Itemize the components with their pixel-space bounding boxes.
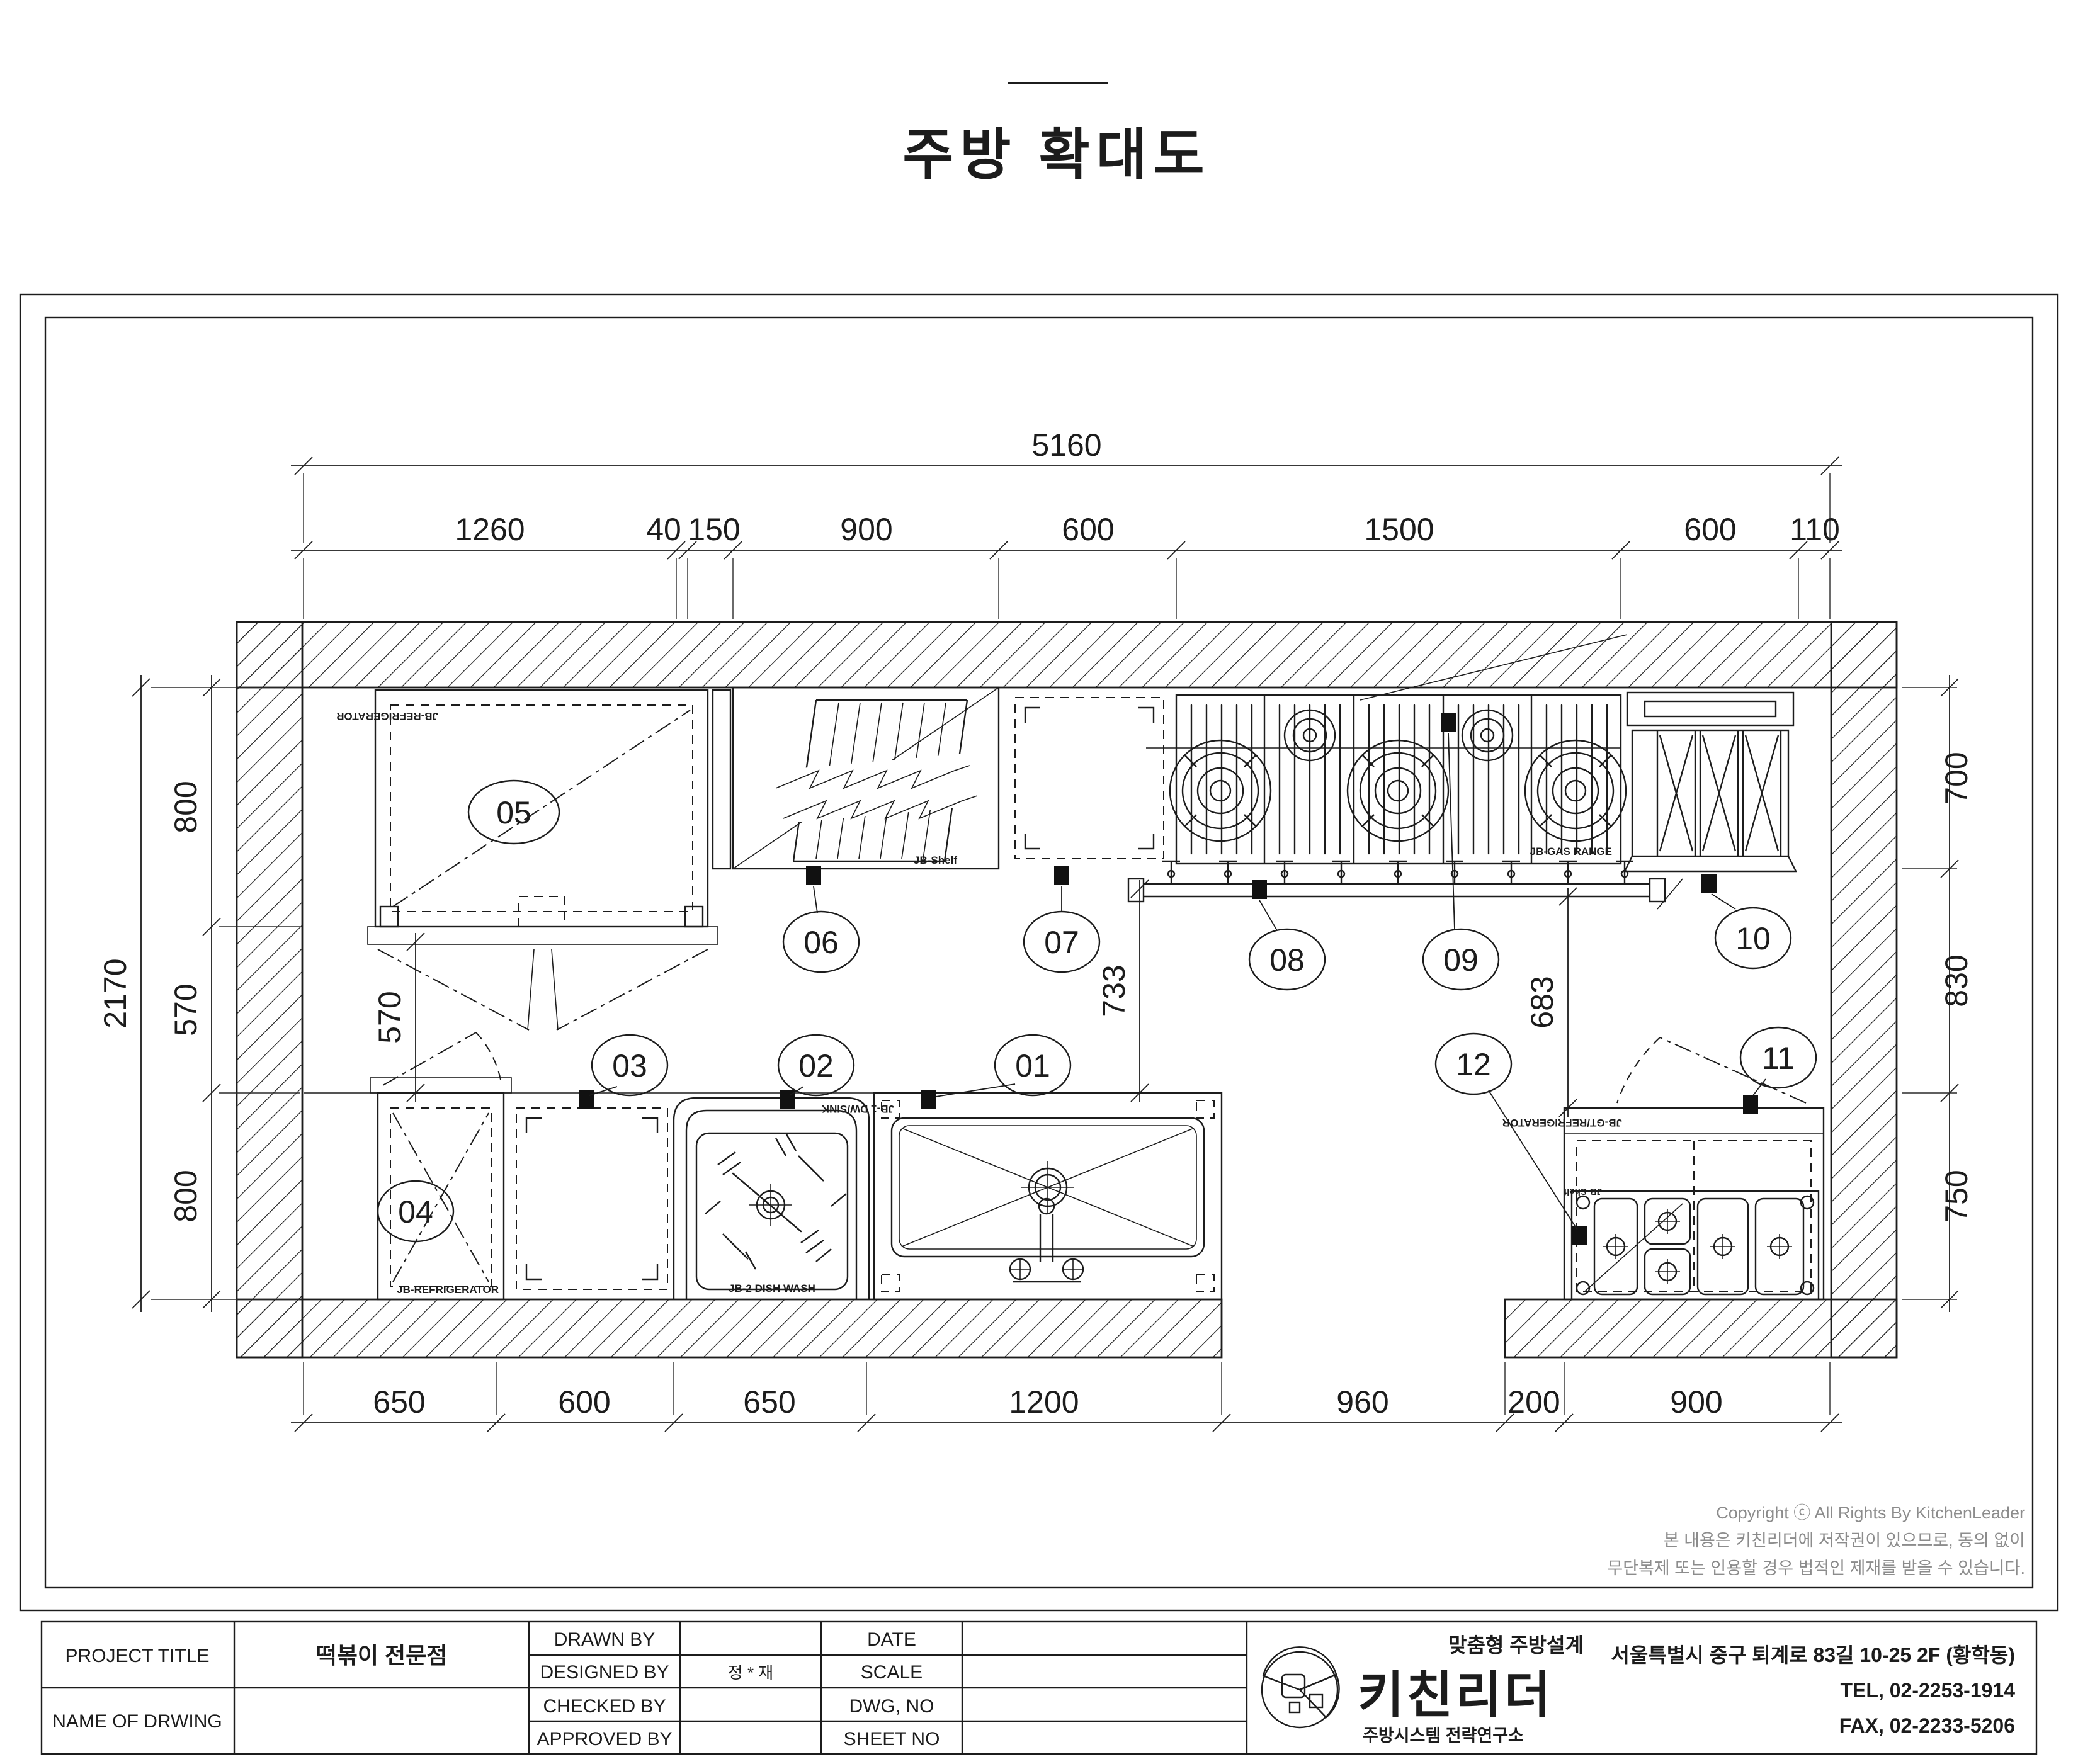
company-address: 서울특별시 중구 퇴계로 83길 10-25 2F (황학동) xyxy=(1611,1644,2015,1666)
burner-large-1 xyxy=(1170,740,1271,841)
svg-text:150: 150 xyxy=(688,512,740,547)
svg-text:600: 600 xyxy=(558,1384,610,1420)
bubble-10: 10 xyxy=(1701,874,1791,968)
svg-text:650: 650 xyxy=(743,1384,795,1420)
copyright-line2: 본 내용은 키친리더에 저작권이 있으므로, 동의 없이 xyxy=(1664,1531,2025,1550)
svg-text:2170: 2170 xyxy=(98,958,133,1028)
dimensions: 5160 1260 40 150 900 600 1500 600 110 21… xyxy=(98,427,1974,1432)
dim-interior-683: 683 xyxy=(1524,888,1577,1117)
gas-valves xyxy=(1162,861,1633,884)
dim-bottom: 650 600 650 1200 960 200 900 xyxy=(291,1362,1842,1432)
unit-11-12-gt-refrigerator: JB-GT/REFRIGERATOR JB-Shelf xyxy=(1502,1037,1824,1299)
dim-right: 700 830 750 xyxy=(1902,675,1974,1312)
bubble-03: 03 xyxy=(579,1035,667,1109)
company-tel: TEL, 02-2253-1914 xyxy=(1841,1679,2016,1702)
bubble-04: 04 xyxy=(378,1181,453,1241)
wall-left xyxy=(237,622,302,1357)
svg-text:600: 600 xyxy=(1684,512,1736,547)
sheet-no-label: SHEET NO xyxy=(844,1729,940,1750)
svg-text:10: 10 xyxy=(1735,921,1771,956)
svg-text:08: 08 xyxy=(1269,942,1305,978)
gas-range-label: JB-GAS RANGE xyxy=(1530,845,1612,857)
unit-05-refrigerator: JB-REFRIGERATOR xyxy=(336,690,718,1030)
unit-02-label: JB-2 DISH WASH xyxy=(729,1282,815,1294)
burner-large-2 xyxy=(1348,740,1448,841)
svg-text:570: 570 xyxy=(372,991,407,1043)
unit-02-dishwasher: JB-2 DISH WASH xyxy=(674,1098,869,1299)
svg-text:5160: 5160 xyxy=(1031,427,1101,463)
svg-text:03: 03 xyxy=(612,1048,647,1083)
svg-text:06: 06 xyxy=(803,925,839,960)
logo-subtitle: 주방시스템 전략연구소 xyxy=(1363,1726,1524,1745)
svg-text:01: 01 xyxy=(1015,1048,1050,1083)
unit-06-label: JB-Shelf xyxy=(914,854,957,866)
svg-text:02: 02 xyxy=(798,1048,834,1083)
svg-text:200: 200 xyxy=(1507,1384,1560,1420)
svg-text:05: 05 xyxy=(496,795,531,830)
company-fax: FAX, 02-2233-5206 xyxy=(1839,1714,2015,1737)
page-title-text: 주방 확대도 xyxy=(902,123,1210,186)
svg-text:570: 570 xyxy=(168,983,203,1036)
bubble-07: 07 xyxy=(1024,866,1099,972)
logo-tagline: 맞춤형 주방설계 xyxy=(1448,1634,1584,1656)
unit-04-refrigerator: JB-REFRIGERATOR xyxy=(370,1032,511,1299)
company-address-block: 서울특별시 중구 퇴계로 83길 10-25 2F (황학동) TEL, 02-… xyxy=(1611,1644,2015,1737)
wall-right xyxy=(1831,622,1897,1357)
svg-text:960: 960 xyxy=(1336,1384,1388,1420)
wall-top xyxy=(237,622,1897,687)
checked-by-label: CHECKED BY xyxy=(543,1696,666,1717)
kitchenleader-logo: 키친리더 맞춤형 주방설계 주방시스템 전략연구소 xyxy=(1262,1634,1584,1745)
unit-07-open-bay xyxy=(1015,698,1164,859)
svg-text:900: 900 xyxy=(840,512,892,547)
designed-by-label: DESIGNED BY xyxy=(540,1662,669,1683)
burner-small-2 xyxy=(1462,710,1513,760)
unit-05-label: JB-REFRIGERATOR xyxy=(336,710,438,722)
bubble-06: 06 xyxy=(783,866,859,972)
approved-by-label: APPROVED BY xyxy=(537,1729,672,1750)
copyright-line3: 무단복제 또는 인용할 경우 법적인 제재를 받을 수 있습니다. xyxy=(1607,1559,2025,1578)
svg-text:09: 09 xyxy=(1443,942,1479,978)
svg-text:600: 600 xyxy=(1062,512,1114,547)
burner-large-3 xyxy=(1525,740,1626,841)
bubble-01: 01 xyxy=(921,1035,1070,1109)
svg-text:07: 07 xyxy=(1044,925,1079,960)
title-block: PROJECT TITLE 떡볶이 전문점 NAME OF DRWING DRA… xyxy=(42,1622,2036,1754)
x-panels xyxy=(1660,735,1778,851)
svg-text:11: 11 xyxy=(1762,1041,1795,1076)
spray-lines xyxy=(705,1133,846,1269)
filler-panel xyxy=(713,690,730,869)
unit-11-12-label: JB-GT/REFRIGERATOR xyxy=(1502,1117,1622,1129)
bubble-09: 09 xyxy=(1423,713,1499,990)
svg-text:1200: 1200 xyxy=(1009,1384,1079,1420)
walls xyxy=(237,622,1897,1357)
unit-03-open-bay xyxy=(516,1108,667,1289)
svg-text:04: 04 xyxy=(398,1194,433,1230)
copyright-note: Copyright ⓒ All Rights By KitchenLeader … xyxy=(1607,1503,2025,1578)
dwg-no-label: DWG, NO xyxy=(849,1696,934,1717)
bubble-11: 11 xyxy=(1740,1027,1816,1114)
svg-text:733: 733 xyxy=(1096,964,1132,1017)
page-title: 주방 확대도 xyxy=(902,83,1210,186)
project-title-value: 떡볶이 전문점 xyxy=(316,1642,448,1668)
unit-10-cabinet xyxy=(1625,693,1796,871)
bubble-05: 05 xyxy=(468,781,559,844)
svg-text:830: 830 xyxy=(1939,954,1974,1007)
unit-04-label: JB-REFRIGERATOR xyxy=(397,1284,499,1296)
dim-top-segments: 1260 40 150 900 600 1500 600 110 xyxy=(291,512,1842,619)
dim-interior-570: 570 xyxy=(372,933,424,1102)
svg-text:40: 40 xyxy=(646,512,681,547)
wall-bottom-left xyxy=(237,1299,1222,1357)
unit-06-shelf: JB-Shelf xyxy=(733,687,999,869)
svg-text:800: 800 xyxy=(168,781,203,833)
dim-interior-733: 733 xyxy=(1096,880,1149,1102)
wall-bottom-right xyxy=(1505,1299,1897,1357)
svg-text:683: 683 xyxy=(1524,976,1560,1028)
unit-11-12-shelf-label: JB-Shelf xyxy=(1563,1186,1602,1197)
gas-pipe xyxy=(1128,861,1683,909)
scale-label: SCALE xyxy=(861,1662,923,1683)
faucet xyxy=(1010,1199,1083,1282)
svg-text:1500: 1500 xyxy=(1364,512,1434,547)
svg-text:1260: 1260 xyxy=(455,512,525,547)
copyright-line1: Copyright ⓒ All Rights By KitchenLeader xyxy=(1716,1503,2025,1522)
logo-company-name: 키친리더 xyxy=(1358,1667,1553,1723)
svg-text:110: 110 xyxy=(1790,512,1840,547)
svg-text:700: 700 xyxy=(1939,752,1974,804)
unit-01-sink: JB-1 DW/SINK xyxy=(821,1093,1222,1299)
svg-text:750: 750 xyxy=(1939,1170,1974,1222)
date-label: DATE xyxy=(867,1629,916,1650)
svg-text:900: 900 xyxy=(1670,1384,1722,1420)
name-of-drawing-label: NAME OF DRWING xyxy=(52,1711,222,1732)
project-title-label: PROJECT TITLE xyxy=(65,1646,210,1666)
svg-text:650: 650 xyxy=(373,1384,425,1420)
svg-text:12: 12 xyxy=(1456,1047,1491,1082)
break-gap xyxy=(773,753,980,823)
drawn-by-label: DRAWN BY xyxy=(554,1629,656,1650)
kitchen-enlarged-drawing: 주방 확대도 JB-REFRIGERATOR xyxy=(0,0,2078,1764)
designed-by-value: 정 * 재 xyxy=(728,1663,773,1682)
unit-01-label: JB-1 DW/SINK xyxy=(821,1103,894,1115)
door-swing-right xyxy=(557,949,708,1030)
svg-text:800: 800 xyxy=(168,1170,203,1222)
